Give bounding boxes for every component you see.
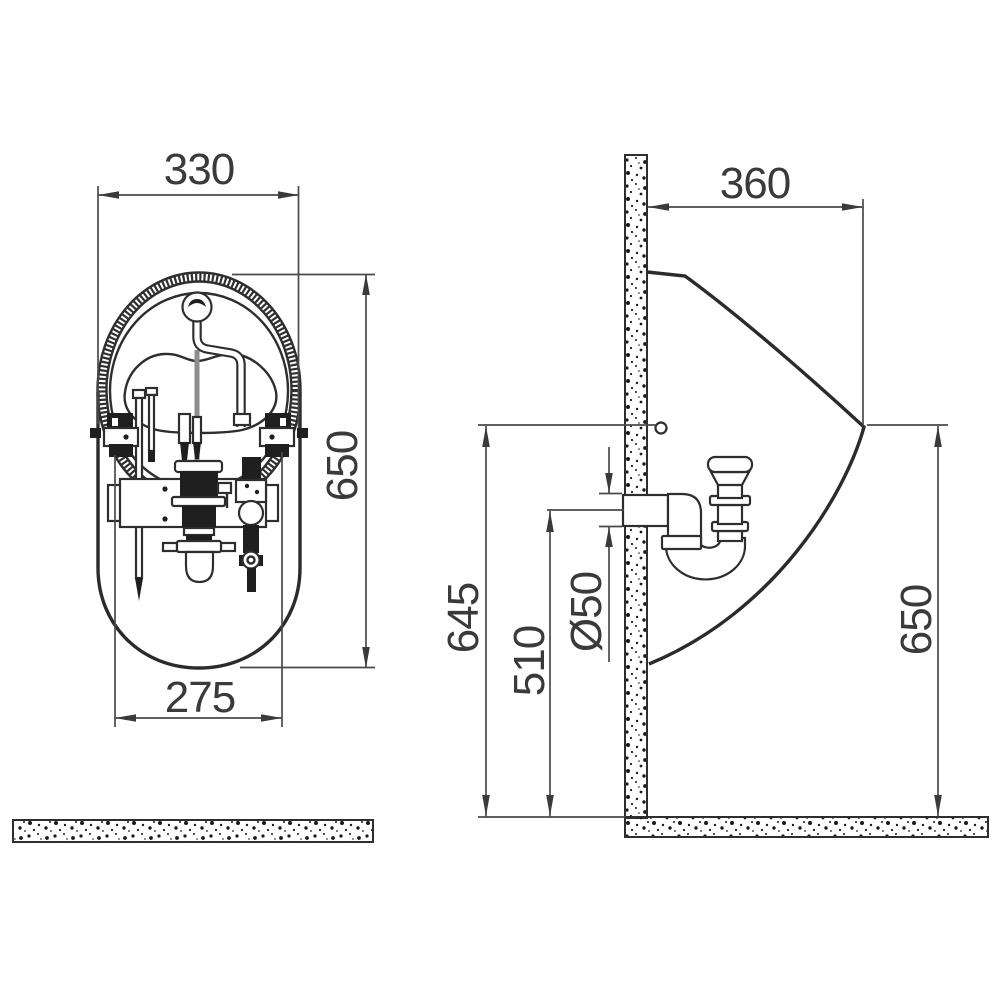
dim-360-label: 360 (720, 159, 790, 208)
dim-dia50-label: Ø50 (562, 572, 611, 652)
drain-plug-right (193, 417, 201, 443)
arrowhead (648, 203, 669, 211)
small-rod (149, 395, 154, 451)
small-rod-tip (148, 450, 155, 462)
drain-plug-left (179, 414, 190, 443)
side-view-dimensions: 360 645 510 Ø50 650 (439, 159, 948, 817)
floor-section-right (625, 817, 988, 837)
sensor-rod-cap (133, 390, 145, 398)
urinal-installation-drawing: 330 650 275 (0, 0, 1000, 1000)
front-view (90, 273, 308, 669)
dim-645-label: 645 (439, 583, 488, 653)
arrowhead (842, 203, 863, 211)
arrowhead (362, 274, 370, 295)
arrowhead (934, 795, 942, 816)
drain-plug-left-tip (180, 442, 189, 461)
dim-330-label: 330 (164, 145, 234, 194)
arrowhead (115, 714, 136, 722)
arrowhead (605, 527, 613, 547)
arrowhead (546, 795, 554, 816)
trap-slip-nut (662, 536, 701, 549)
wall-outlet-box (623, 495, 668, 526)
dim-650-front-label: 650 (318, 431, 367, 501)
arrowhead (482, 426, 490, 447)
drain-plug-right-tip (193, 442, 201, 459)
fixing-hole (656, 423, 667, 434)
wall-section (625, 155, 647, 818)
dim-510-label: 510 (505, 626, 554, 696)
urinal-side-profile (647, 272, 864, 664)
arrowhead (261, 714, 282, 722)
arrowhead (278, 191, 299, 199)
side-view (478, 155, 988, 837)
drain-tailpiece (708, 457, 752, 541)
arrowhead (362, 647, 370, 668)
technical-drawing-page: 330 650 275 (0, 0, 1000, 1000)
arrowhead (98, 191, 119, 199)
spreader-supply-pipe (197, 321, 241, 427)
floor-section-left (13, 820, 373, 842)
spreader-supply-pipe-core (197, 321, 241, 427)
drain-cup (186, 552, 213, 582)
arrowhead (546, 511, 554, 532)
arrowhead (482, 795, 490, 816)
dim-275-label: 275 (165, 673, 235, 722)
pipe-clamp (234, 414, 250, 425)
dim-650-side-label: 650 (892, 585, 941, 655)
spreader-head (183, 293, 212, 322)
sensor-rod-tip (135, 578, 143, 601)
arrowhead (934, 426, 942, 447)
arrowhead (605, 473, 613, 493)
